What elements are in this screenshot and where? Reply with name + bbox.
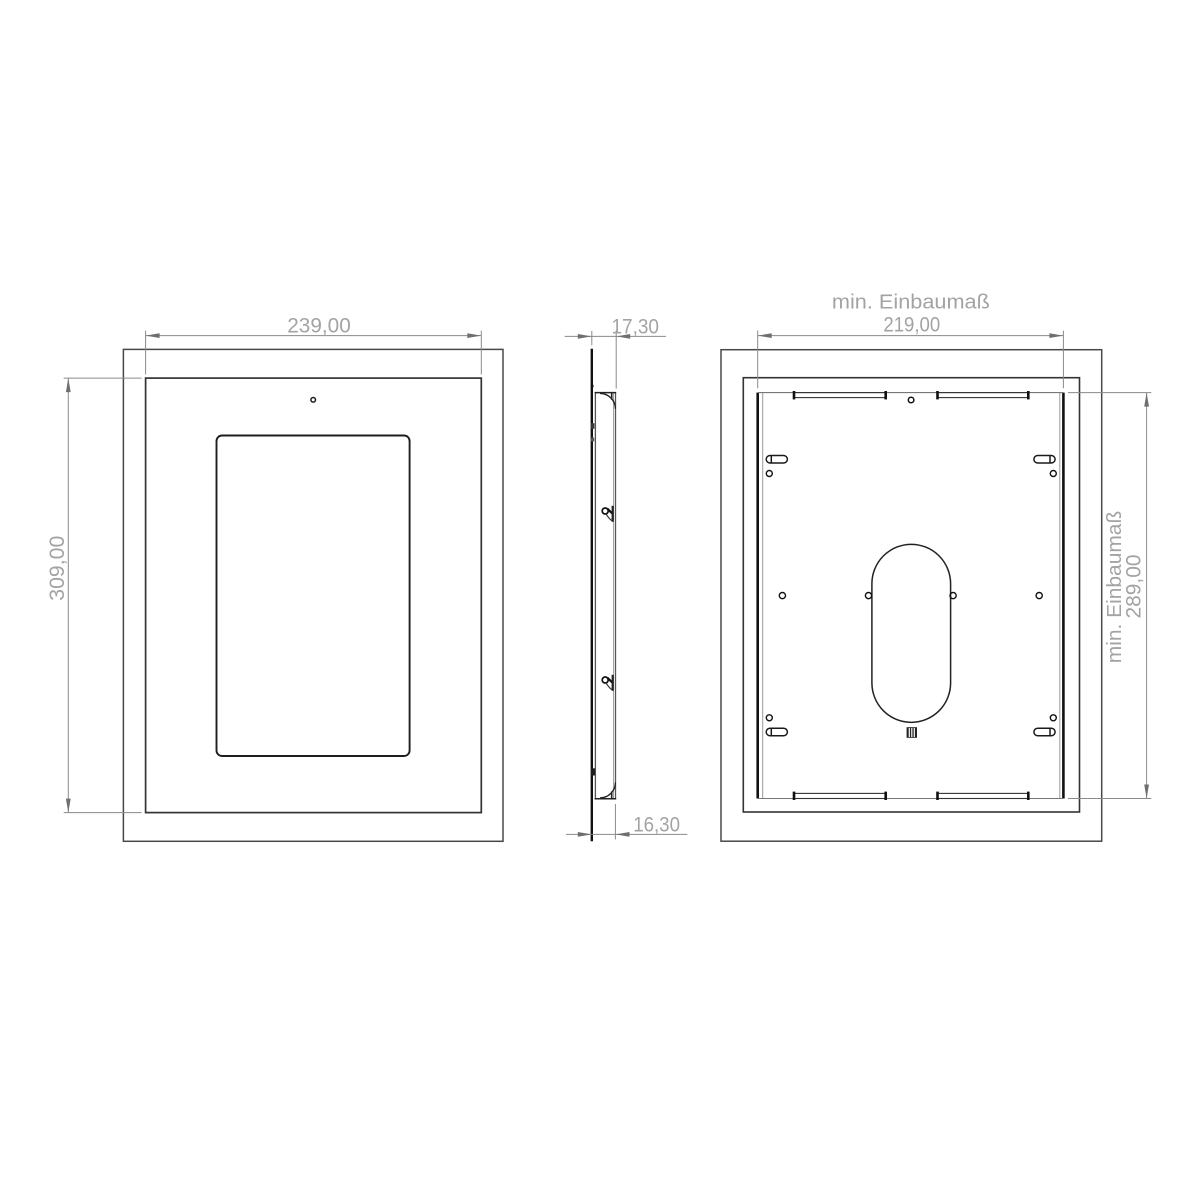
svg-text:min. Einbaumaß: min. Einbaumaß: [832, 290, 990, 313]
svg-text:289,00: 289,00: [1122, 554, 1146, 618]
svg-text:16,30: 16,30: [633, 812, 680, 836]
svg-text:239,00: 239,00: [287, 314, 351, 338]
svg-text:219,00: 219,00: [883, 313, 940, 337]
svg-text:17,30: 17,30: [612, 314, 660, 338]
svg-text:309,00: 309,00: [45, 536, 69, 601]
